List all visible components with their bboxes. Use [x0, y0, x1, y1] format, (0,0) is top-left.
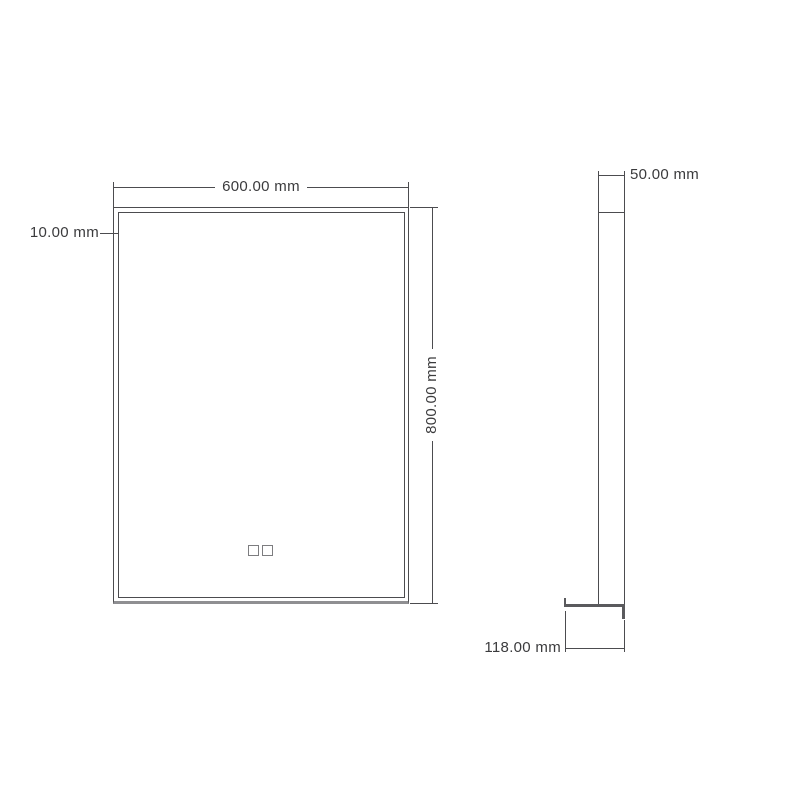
depth-extension-line-left [598, 171, 599, 212]
technical-drawing-canvas: 600.00 mm 10.00 mm 800.00 mm 50.00 mm [0, 0, 800, 800]
depth-dimension-label: 50.00 mm [630, 167, 699, 183]
base-extension-line-left [565, 611, 566, 652]
base-dimension-line [565, 648, 625, 649]
base-depth-dimension-label: 118.00 mm [461, 640, 561, 656]
height-extension-line-bottom [410, 603, 438, 604]
height-dimension-label: 800.00 mm [424, 305, 440, 485]
depth-dimension-line [598, 175, 625, 176]
base-ledge-line [564, 604, 625, 607]
frame-offset-leader-line [100, 233, 119, 234]
base-ledge-front-lip [564, 598, 566, 607]
mirror-side-profile [598, 212, 625, 605]
width-dimension-label: 600.00 mm [113, 179, 409, 195]
depth-extension-line-right [624, 171, 625, 212]
base-ledge-back-return [622, 604, 625, 619]
touch-sensor-right [262, 545, 273, 556]
touch-sensor-left [248, 545, 259, 556]
height-extension-line-top [410, 207, 438, 208]
mirror-inner-frame [118, 212, 405, 598]
frame-offset-label: 10.00 mm [18, 225, 99, 241]
